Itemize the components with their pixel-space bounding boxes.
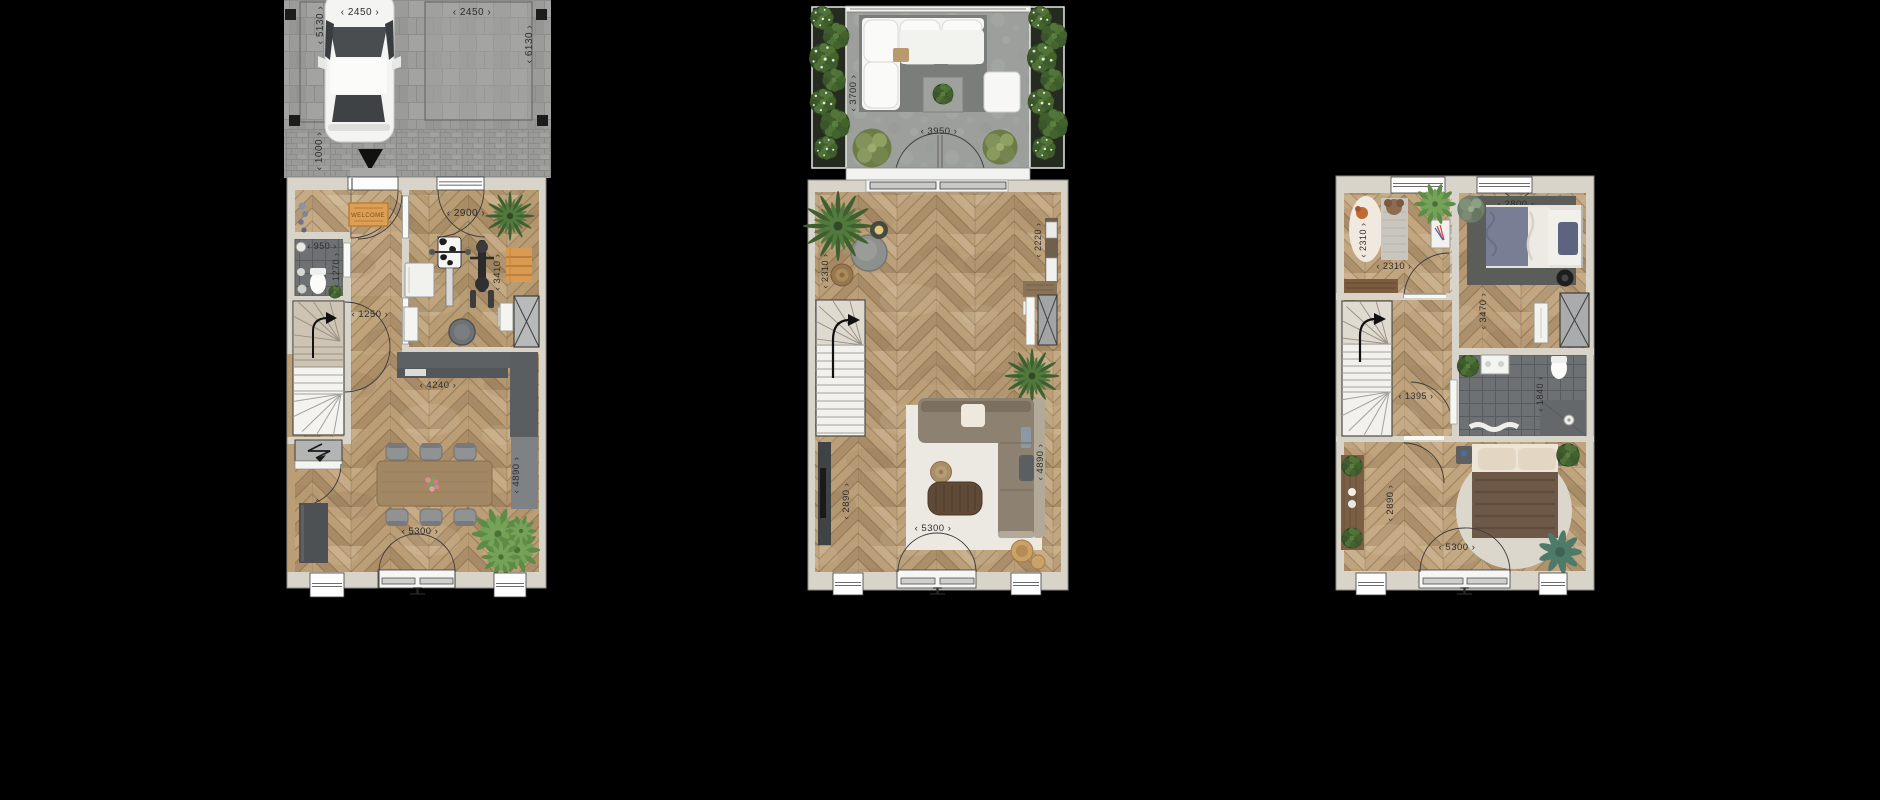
svg-text:‹ 4890 ›: ‹ 4890 › [511,457,522,494]
svg-text:‹ 5130 ›: ‹ 5130 › [315,6,326,44]
svg-text:‹ 1250 ›: ‹ 1250 › [352,309,389,320]
svg-text:‹ 1395 ›: ‹ 1395 › [1398,391,1433,401]
svg-text:‹ 2890 ›: ‹ 2890 › [1385,485,1396,522]
svg-text:‹ 3700 ›: ‹ 3700 › [848,75,859,112]
svg-text:‹ 1000 ›: ‹ 1000 › [314,132,325,170]
svg-text:‹ 2310 ›: ‹ 2310 › [1376,261,1411,271]
svg-text:‹ 2450 ›: ‹ 2450 › [453,7,491,18]
svg-text:‹ 950 ›: ‹ 950 › [307,241,337,251]
svg-text:‹ 1840 ›: ‹ 1840 › [1535,376,1545,411]
svg-text:‹ 5300 ›: ‹ 5300 › [915,523,952,534]
svg-text:‹ 6130 ›: ‹ 6130 › [524,25,535,63]
svg-text:‹ 2450 ›: ‹ 2450 › [341,7,379,18]
svg-text:‹ 2220 ›: ‹ 2220 › [1033,222,1043,257]
svg-text:‹ 4890 ›: ‹ 4890 › [1035,444,1046,481]
svg-text:‹ 3950 ›: ‹ 3950 › [921,126,958,137]
svg-text:‹ 3410 ›: ‹ 3410 › [492,254,503,291]
svg-text:‹ 2890 ›: ‹ 2890 › [841,483,852,520]
svg-text:‹ 2310 ›: ‹ 2310 › [820,253,830,288]
svg-text:‹ 3470 ›: ‹ 3470 › [1478,293,1489,330]
svg-text:‹ 5300 ›: ‹ 5300 › [1439,542,1476,553]
svg-text:‹ 2310 ›: ‹ 2310 › [1358,222,1368,257]
svg-text:WELCOME: WELCOME [351,213,385,219]
svg-text:‹ 1270 ›: ‹ 1270 › [331,252,341,287]
svg-text:‹ 4240 ›: ‹ 4240 › [420,380,457,391]
